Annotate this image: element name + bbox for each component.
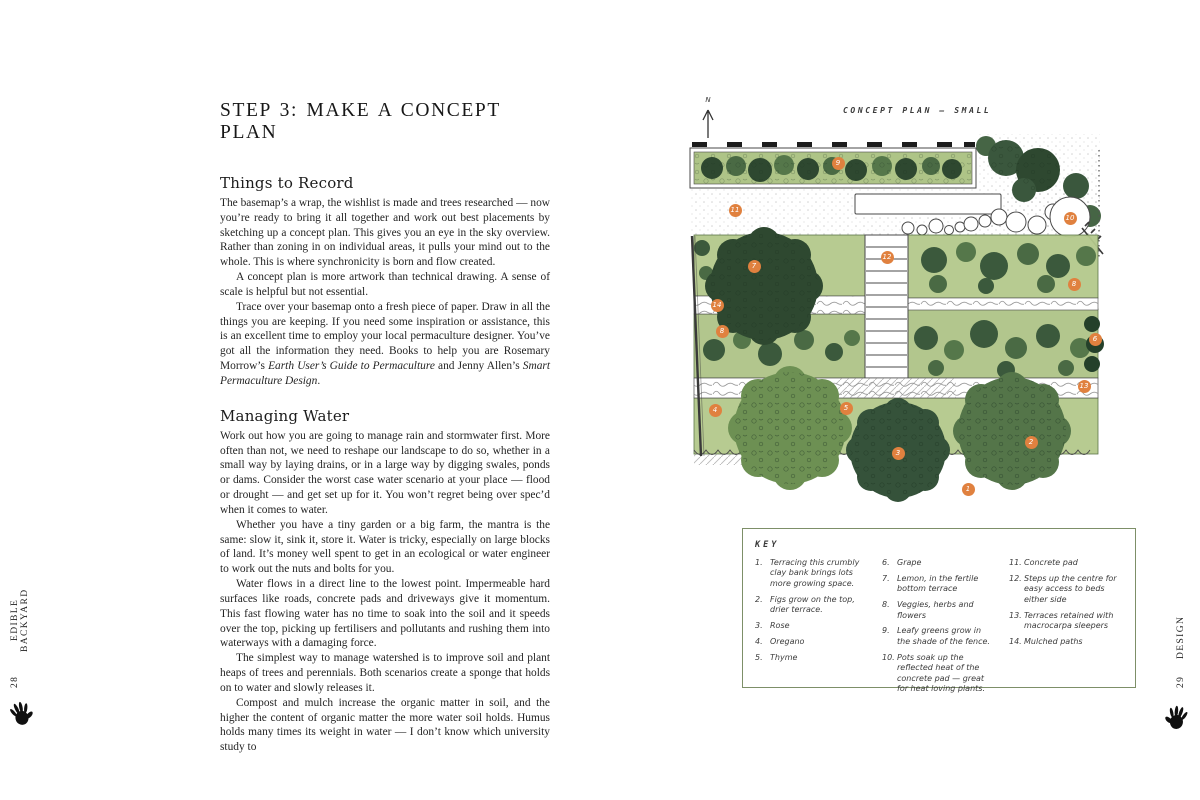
key-item-number: 1. [755,558,770,589]
key-item-text: Figs grow on the top, drier terrace. [770,595,869,616]
plan-marker-2: 2 [1025,436,1038,449]
key-item-text: Steps up the centre for easy access to b… [1024,574,1123,605]
key-item-number: 6. [882,558,897,568]
key-item-number: 5. [755,653,770,663]
key-item-number: 12. [1009,574,1024,605]
key-item-text: Oregano [770,637,869,647]
body-paragraph: Whether you have a tiny garden or a big … [220,518,550,577]
plan-marker-3: 3 [892,447,905,460]
plan-marker-11: 11 [729,204,742,217]
key-item: 13.Terraces retained with macrocarpa sle… [1009,611,1123,632]
body-paragraph: Compost and mulch increase the organic m… [220,696,550,755]
plan-marker-4: 4 [709,404,722,417]
plan-marker-13: 13 [1078,380,1091,393]
key-item: 9.Leafy greens grow in the shade of the … [882,626,996,647]
body-paragraph: Work out how you are going to manage rai… [220,429,550,518]
key-item-text: Rose [770,621,869,631]
key-column: 11.Concrete pad12.Steps up the centre fo… [1009,558,1123,700]
key-item-text: Terraces retained with macrocarpa sleepe… [1024,611,1123,632]
key-item: 5.Thyme [755,653,869,663]
key-item-text: Grape [897,558,996,568]
key-item-text: Veggies, herbs and flowers [897,600,996,621]
key-item-number: 14. [1009,637,1024,647]
section-managing-water: Managing Water Work out how you are goin… [220,407,550,755]
key-item-text: Concrete pad [1024,558,1123,568]
key-item-number: 3. [755,621,770,631]
plan-marker-8: 8 [716,325,729,338]
key-item: 4.Oregano [755,637,869,647]
key-column: 6.Grape7.Lemon, in the fertile bottom te… [882,558,996,700]
plan-title: CONCEPT PLAN — SMALL [843,106,991,115]
page-number-left: 28 [10,668,20,688]
key-item-number: 2. [755,595,770,616]
key-item: 6.Grape [882,558,996,568]
key-item-number: 9. [882,626,897,647]
plan-marker-8: 8 [1068,278,1081,291]
key-box: KEY 1.Terracing this crumbly clay bank b… [742,528,1136,688]
key-item: 2.Figs grow on the top, drier terrace. [755,595,869,616]
key-item: 14.Mulched paths [1009,637,1123,647]
key-item: 8.Veggies, herbs and flowers [882,600,996,621]
key-item: 3.Rose [755,621,869,631]
key-item-number: 4. [755,637,770,647]
hand-icon [1162,702,1192,733]
plan-marker-1: 1 [962,483,975,496]
plan-marker-6: 6 [1089,333,1102,346]
section-heading: Managing Water [220,407,550,425]
body-paragraph: The basemap’s a wrap, the wishlist is ma… [220,196,550,270]
key-item: 11.Concrete pad [1009,558,1123,568]
plan-marker-12: 12 [881,251,894,264]
plan-marker-14: 14 [711,299,724,312]
plan-marker-10: 10 [1064,212,1077,225]
key-item: 1.Terracing this crumbly clay bank bring… [755,558,869,589]
key-item-number: 8. [882,600,897,621]
body-paragraph: Trace over your basemap onto a fresh pie… [220,300,550,389]
north-label: N [698,96,718,104]
page-number-right: 29 [1176,668,1186,688]
hand-icon [5,697,37,730]
section-things-to-record: Things to Record The basemap’s a wrap, t… [220,174,550,389]
key-item-text: Lemon, in the fertile bottom terrace [897,574,996,595]
key-item-text: Pots soak up the reflected heat of the c… [897,653,996,695]
plan-marker-layer: 91110712814861345321 [686,128,1106,518]
key-item-number: 13. [1009,611,1024,632]
body-paragraph: Water flows in a direct line to the lowe… [220,577,550,651]
key-item-text: Leafy greens grow in the shade of the fe… [897,626,996,647]
plan-marker-5: 5 [840,402,853,415]
key-item-text: Thyme [770,653,869,663]
key-columns: 1.Terracing this crumbly clay bank bring… [755,558,1123,700]
key-item-number: 7. [882,574,897,595]
body-paragraph: A concept plan is more artwork than tech… [220,270,550,300]
chapter-title: STEP 3: MAKE A CONCEPT PLAN [220,100,550,144]
left-page-text-column: STEP 3: MAKE A CONCEPT PLAN Things to Re… [220,100,550,769]
spine-label-right: DESIGN [1176,606,1186,668]
key-column: 1.Terracing this crumbly clay bank bring… [755,558,869,700]
section-heading: Things to Record [220,174,550,192]
spine-label-left: EDIBLE BACKYARD [10,572,30,668]
book-spread: STEP 3: MAKE A CONCEPT PLAN Things to Re… [0,0,1200,800]
plan-marker-7: 7 [748,260,761,273]
concept-plan-illustration: 91110712814861345321 [686,128,1106,518]
key-title: KEY [755,540,1123,550]
body-paragraph: The simplest way to manage watershed is … [220,651,550,695]
key-item-text: Mulched paths [1024,637,1123,647]
key-item: 10.Pots soak up the reflected heat of th… [882,653,996,695]
key-item: 7.Lemon, in the fertile bottom terrace [882,574,996,595]
key-item-number: 11. [1009,558,1024,568]
plan-marker-9: 9 [832,157,845,170]
key-item-number: 10. [882,653,897,695]
key-item: 12.Steps up the centre for easy access t… [1009,574,1123,605]
key-item-text: Terracing this crumbly clay bank brings … [770,558,869,589]
